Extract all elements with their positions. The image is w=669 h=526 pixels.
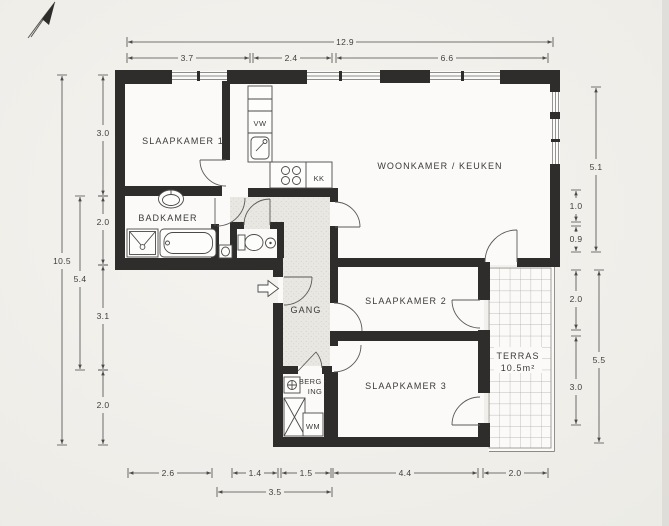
small-basin-niche-icon bbox=[219, 245, 232, 258]
svg-text:10.5: 10.5 bbox=[53, 256, 71, 266]
svg-text:3.0: 3.0 bbox=[97, 128, 110, 138]
window-bedroom1 bbox=[172, 71, 227, 81]
svg-text:3.1: 3.1 bbox=[97, 311, 110, 321]
svg-text:6.6: 6.6 bbox=[441, 53, 454, 63]
svg-text:2.0: 2.0 bbox=[570, 294, 583, 304]
label-bathroom: BADKAMER bbox=[138, 213, 197, 223]
window-living-right-small bbox=[551, 92, 560, 112]
svg-text:4.4: 4.4 bbox=[399, 468, 412, 478]
label-dishwasher: VW bbox=[254, 119, 267, 128]
toilet-bowl-icon bbox=[245, 235, 263, 251]
svg-text:5.5: 5.5 bbox=[593, 355, 606, 365]
svg-text:3.5: 3.5 bbox=[269, 487, 282, 497]
svg-text:3.7: 3.7 bbox=[181, 53, 194, 63]
ventilation-unit-icon bbox=[284, 377, 300, 393]
window-kitchen bbox=[307, 71, 380, 81]
svg-text:2.0: 2.0 bbox=[97, 400, 110, 410]
window-living-top bbox=[430, 71, 500, 81]
svg-text:2.0: 2.0 bbox=[509, 468, 522, 478]
label-bedroom2: SLAAPKAMER 2 bbox=[365, 296, 447, 306]
shaft-icon bbox=[284, 398, 305, 436]
svg-text:0.9: 0.9 bbox=[570, 234, 583, 244]
window-living-right-large bbox=[551, 119, 560, 164]
label-storage-line2: ING bbox=[308, 387, 323, 396]
svg-text:1.5: 1.5 bbox=[300, 468, 313, 478]
label-terrace-area: 10.5m² bbox=[501, 363, 536, 373]
svg-text:12.9: 12.9 bbox=[336, 37, 354, 47]
label-terrace: TERRAS bbox=[496, 351, 539, 361]
scan-edge-shadow bbox=[662, 0, 669, 526]
shower-icon bbox=[127, 229, 158, 257]
floorplan-canvas: SLAAPKAMER 1 WOONKAMER / KEUKEN BADKAMER… bbox=[0, 0, 669, 526]
svg-text:2.6: 2.6 bbox=[162, 468, 175, 478]
svg-text:2.4: 2.4 bbox=[285, 53, 298, 63]
label-bedroom1: SLAAPKAMER 1 bbox=[142, 136, 224, 146]
label-storage-line1: BERG - bbox=[299, 377, 327, 386]
svg-text:5.4: 5.4 bbox=[74, 274, 87, 284]
bathtub-icon bbox=[160, 229, 216, 257]
label-washing-machine: WM bbox=[306, 422, 320, 431]
svg-text:3.0: 3.0 bbox=[570, 382, 583, 392]
label-living-kitchen: WOONKAMER / KEUKEN bbox=[377, 161, 502, 171]
label-fridge: KK bbox=[314, 174, 325, 183]
svg-text:1.0: 1.0 bbox=[570, 201, 583, 211]
svg-text:5.1: 5.1 bbox=[590, 162, 603, 172]
toilet-cistern-icon bbox=[238, 235, 245, 250]
svg-text:1.4: 1.4 bbox=[249, 468, 262, 478]
label-hallway: GANG bbox=[291, 305, 322, 315]
floorplan-page: SLAAPKAMER 1 WOONKAMER / KEUKEN BADKAMER… bbox=[0, 0, 669, 526]
label-bedroom3: SLAAPKAMER 3 bbox=[365, 381, 447, 391]
toilet-fixtures bbox=[237, 229, 277, 258]
svg-text:2.0: 2.0 bbox=[97, 217, 110, 227]
